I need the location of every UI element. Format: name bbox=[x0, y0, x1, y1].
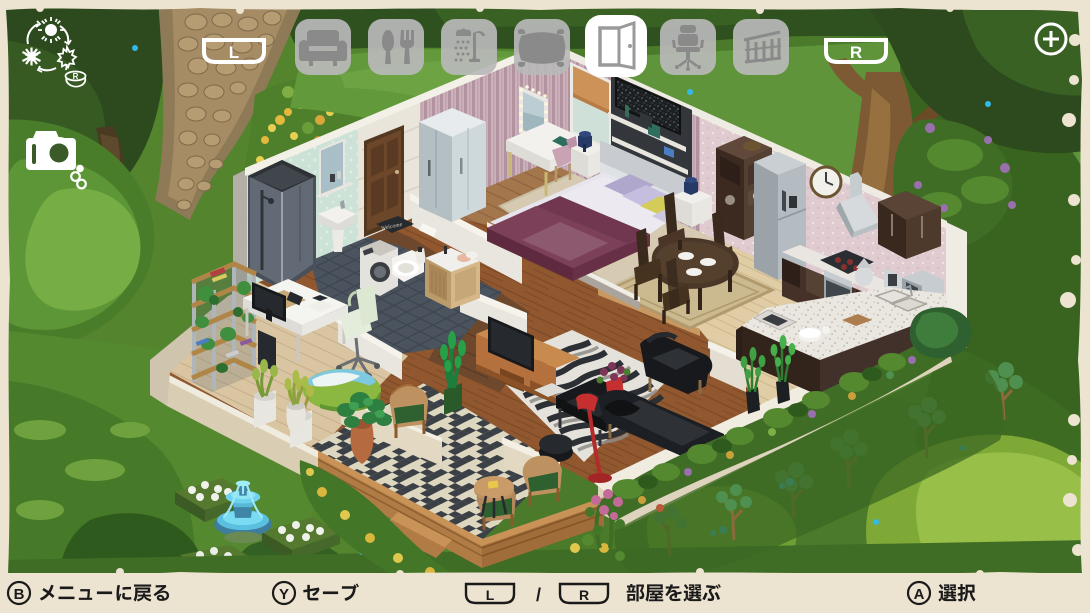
svg-text:L: L bbox=[486, 587, 495, 603]
svg-text:R: R bbox=[850, 43, 862, 62]
svg-text:A: A bbox=[914, 586, 925, 603]
svg-text:Y: Y bbox=[279, 586, 289, 603]
svg-text:R: R bbox=[579, 587, 589, 603]
svg-text:B: B bbox=[14, 586, 25, 603]
svg-text:R: R bbox=[73, 72, 79, 81]
svg-text:/: / bbox=[536, 585, 541, 605]
svg-text:L: L bbox=[229, 43, 239, 62]
